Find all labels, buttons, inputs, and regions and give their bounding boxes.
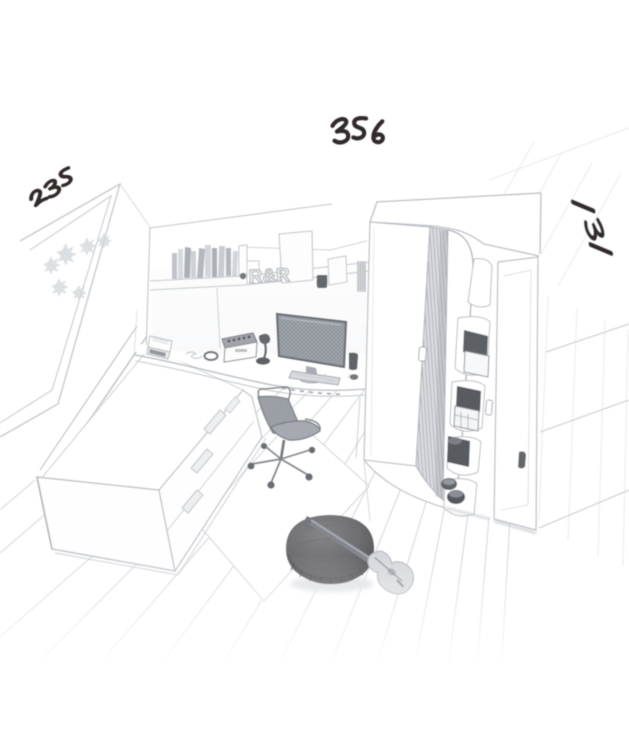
svg-text:R&R: R&R [248,265,290,288]
